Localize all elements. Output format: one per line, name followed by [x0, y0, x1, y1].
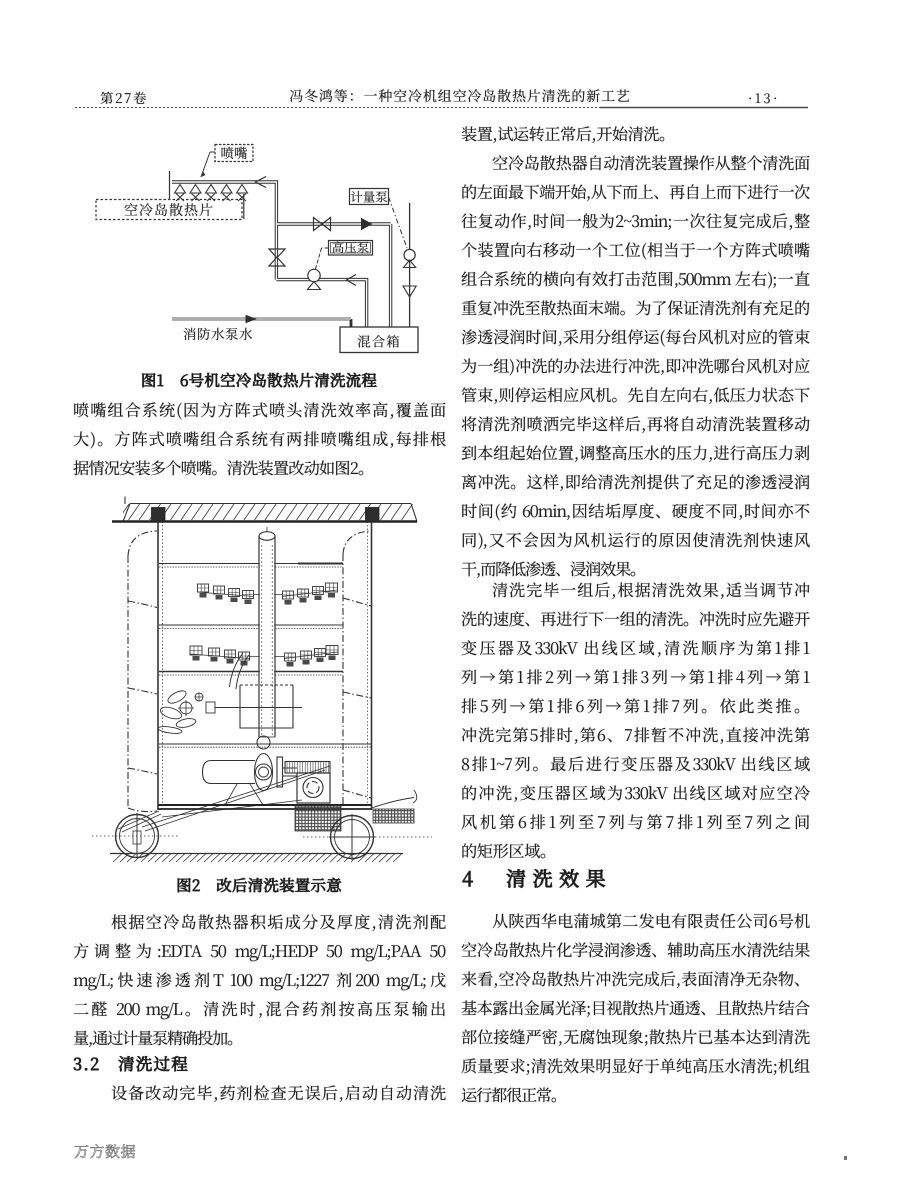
svg-text:空冷岛散热片: 空冷岛散热片	[124, 200, 214, 220]
svg-text:混合箱: 混合箱	[357, 331, 401, 351]
svg-text:消防水泵水: 消防水泵水	[183, 323, 253, 343]
svg-text:高压泵: 高压泵	[332, 238, 370, 256]
svg-text:喷嘴: 喷嘴	[221, 142, 248, 162]
svg-text:计量泵: 计量泵	[350, 188, 388, 206]
